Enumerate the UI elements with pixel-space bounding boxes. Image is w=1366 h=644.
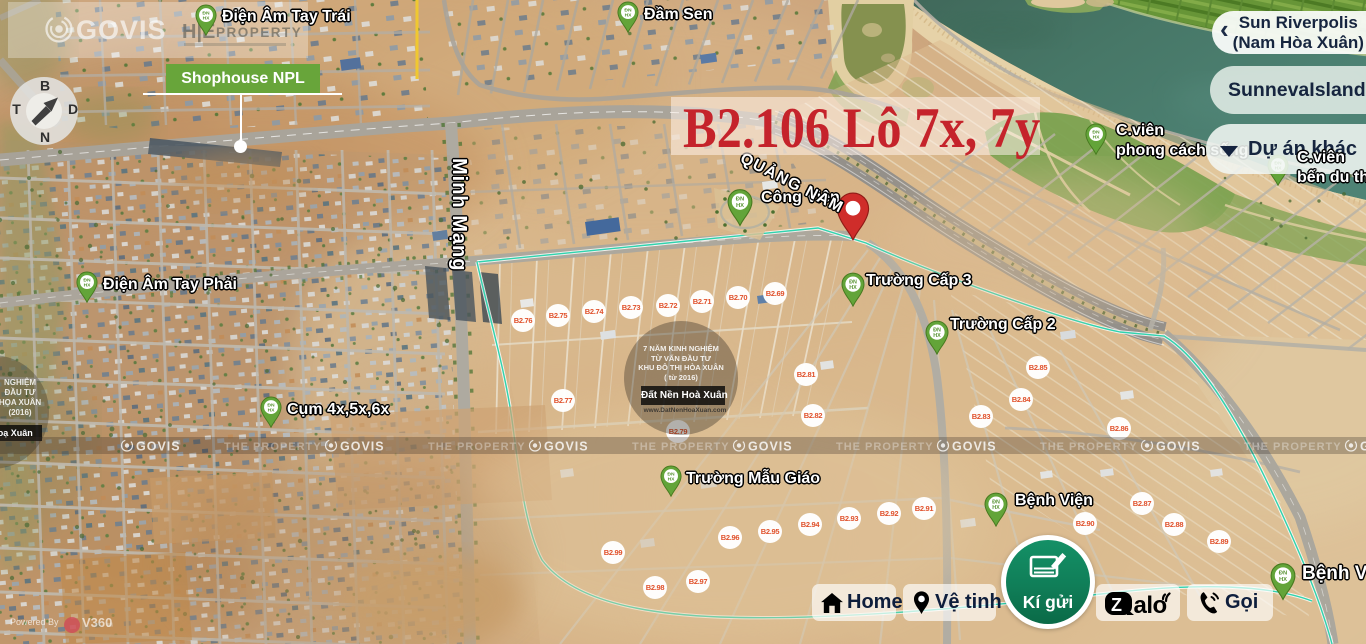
svg-text:Z: Z: [1111, 595, 1122, 615]
svg-text:GOVIS: GOVIS: [1360, 440, 1366, 454]
svg-text:GOVIS: GOVIS: [952, 440, 997, 454]
svg-text:HX: HX: [933, 333, 941, 339]
svg-text:GOVIS: GOVIS: [544, 440, 589, 454]
svg-text:ĐN: ĐN: [624, 7, 632, 13]
svg-text:D: D: [68, 101, 78, 117]
svg-text:T: T: [12, 101, 21, 117]
svg-text:PROPERTY: PROPERTY: [216, 25, 302, 40]
svg-text:GOVIS: GOVIS: [136, 440, 181, 454]
svg-text:ĐN: ĐN: [83, 277, 91, 283]
svg-text:HX: HX: [268, 408, 276, 414]
svg-text:N: N: [40, 129, 50, 145]
svg-text:HX: HX: [668, 477, 676, 483]
svg-text:GOVIS: GOVIS: [748, 440, 793, 454]
svg-text:HX: HX: [849, 285, 857, 291]
svg-text:GOVIS: GOVIS: [340, 440, 385, 454]
svg-text:HX: HX: [84, 283, 92, 289]
svg-text:ĐN: ĐN: [1279, 571, 1287, 577]
svg-text:HX: HX: [1093, 135, 1101, 141]
svg-text:GOVIS: GOVIS: [76, 15, 167, 45]
svg-text:ĐN: ĐN: [267, 402, 275, 408]
svg-text:B: B: [40, 78, 50, 94]
svg-text:ĐN: ĐN: [1092, 129, 1100, 135]
svg-text:HX: HX: [203, 16, 211, 22]
svg-text:ĐN: ĐN: [736, 197, 744, 203]
svg-text:GOVIS: GOVIS: [1156, 440, 1201, 454]
svg-text:ĐN: ĐN: [202, 10, 210, 16]
svg-text:alo: alo: [1134, 592, 1167, 617]
svg-text:ĐN: ĐN: [667, 471, 675, 477]
svg-text:HX: HX: [625, 13, 633, 19]
svg-text:HX: HX: [1279, 577, 1287, 583]
svg-text:HX: HX: [992, 505, 1000, 511]
svg-text:HX: HX: [736, 203, 744, 209]
